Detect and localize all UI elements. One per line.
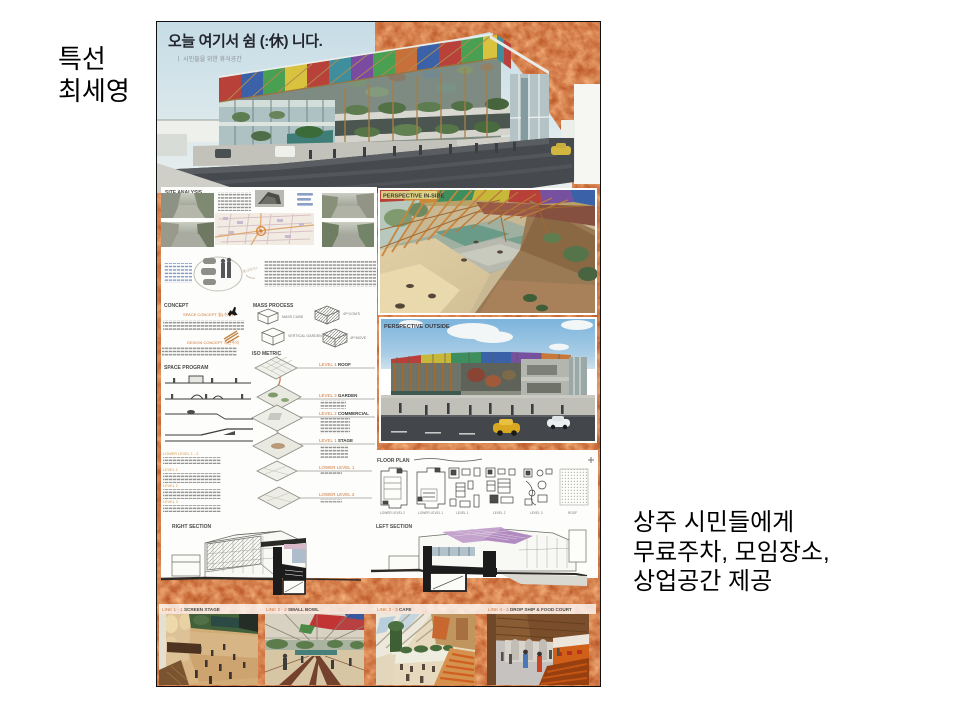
svg-text:LINK 4 - 4 DROP SHIP & FOOD CO: LINK 4 - 4 DROP SHIP & FOOD COURT (488, 607, 572, 612)
svg-text:ROOF: ROOF (568, 511, 577, 515)
svg-text:PERSPECTIVE IN-SIDE: PERSPECTIVE IN-SIDE (383, 194, 445, 200)
svg-text:LEVEL 3: LEVEL 3 (163, 500, 178, 504)
svg-text:FLOOR PLAN: FLOOR PLAN (377, 458, 410, 464)
svg-text:LOWER LEVEL 2: LOWER LEVEL 2 (319, 492, 355, 497)
svg-text:LINK 2 - 2 SMALL BOWL: LINK 2 - 2 SMALL BOWL (266, 607, 319, 612)
svg-text:LEVEL 1: LEVEL 1 (456, 511, 469, 515)
svg-text:ISO METRIC: ISO METRIC (252, 351, 282, 357)
svg-text:MASS CUBE: MASS CUBE (282, 315, 304, 319)
svg-text:VERTICAL GARDEN: VERTICAL GARDEN (288, 334, 322, 338)
svg-text:LEVEL 3: LEVEL 3 (530, 511, 543, 515)
svg-text:PERSPECTIVE OUTSIDE: PERSPECTIVE OUTSIDE (384, 324, 450, 330)
svg-text:4F*MOVE: 4F*MOVE (350, 336, 367, 340)
svg-text:LEVEL 4 ROOF: LEVEL 4 ROOF (319, 362, 351, 367)
svg-text:LOWER LEVEL 2: LOWER LEVEL 2 (380, 511, 405, 515)
svg-text:LOWER LEVEL 1: LOWER LEVEL 1 (418, 511, 443, 515)
svg-text:LEVEL 2 COMMERCIAL: LEVEL 2 COMMERCIAL (319, 411, 369, 416)
svg-text:LEVEL 2: LEVEL 2 (163, 484, 178, 488)
svg-text:SPACE PROGRAM: SPACE PROGRAM (164, 365, 208, 371)
svg-text:LINK 3 - 3 CAFE: LINK 3 - 3 CAFE (377, 607, 411, 612)
svg-text:LEVEL 1: LEVEL 1 (163, 468, 178, 472)
svg-text:MASS PROCESS: MASS PROCESS (253, 303, 294, 309)
svg-text:LINK 1 - 1 SCREEN STAGE: LINK 1 - 1 SCREEN STAGE (162, 607, 220, 612)
svg-text:LEVEL 2: LEVEL 2 (493, 511, 506, 515)
svg-text:CONCEPT: CONCEPT (164, 303, 188, 309)
svg-text:LOWER LEVEL 1: LOWER LEVEL 1 (319, 465, 355, 470)
svg-text:LEVEL 3 GARDEN: LEVEL 3 GARDEN (319, 393, 357, 398)
svg-text:LOWER LEVEL 1 - 2: LOWER LEVEL 1 - 2 (163, 452, 198, 456)
svg-text:SPACE CONCEPT 쉼(:쉬다): SPACE CONCEPT 쉼(:쉬다) (183, 311, 233, 317)
svg-text:4F*COM'S: 4F*COM'S (343, 312, 361, 316)
svg-text:LEVEL 1 STAGE: LEVEL 1 STAGE (319, 438, 353, 443)
